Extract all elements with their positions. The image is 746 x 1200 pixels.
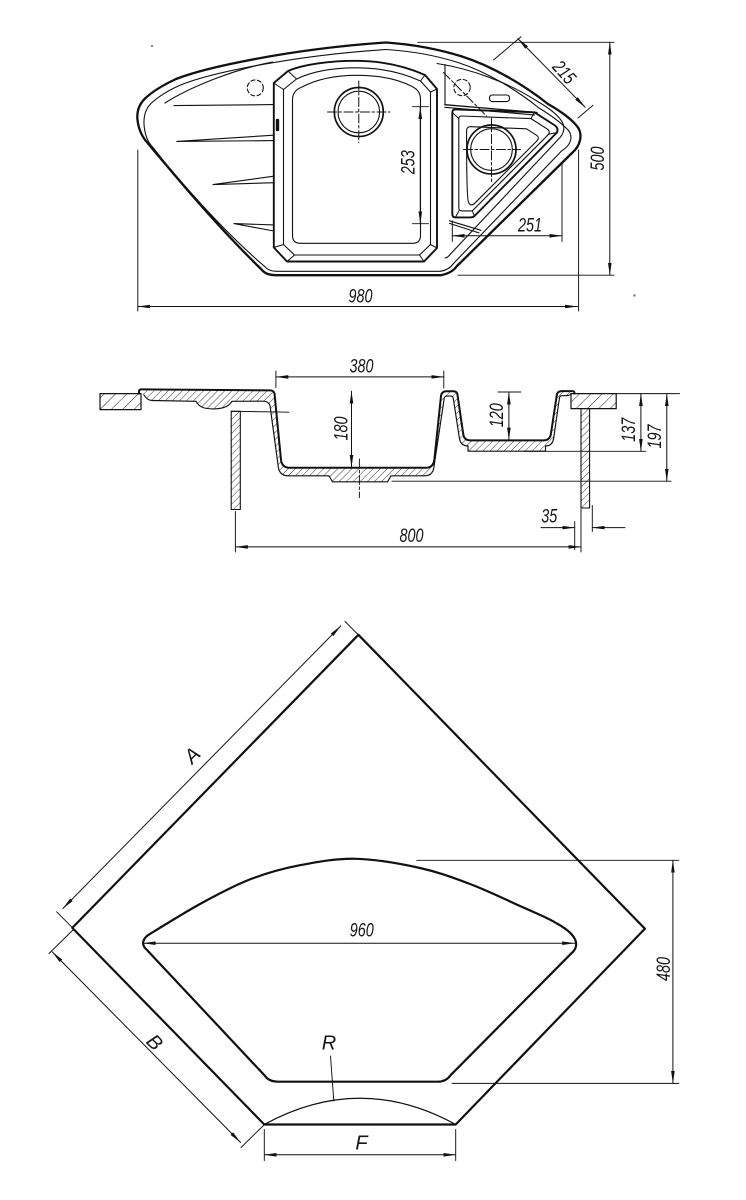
svg-text:251: 251	[517, 216, 542, 237]
svg-text:215: 215	[547, 56, 579, 89]
svg-text:980: 980	[349, 287, 373, 308]
svg-text:120: 120	[487, 403, 508, 427]
svg-text:960: 960	[350, 921, 374, 942]
svg-text:197: 197	[645, 423, 666, 448]
svg-text:380: 380	[350, 357, 374, 378]
svg-text:800: 800	[400, 526, 424, 547]
svg-text:137: 137	[619, 417, 640, 442]
svg-text:F: F	[355, 1133, 369, 1155]
svg-text:R: R	[322, 1033, 336, 1055]
svg-text:500: 500	[588, 146, 609, 170]
svg-text:253: 253	[398, 150, 419, 175]
svg-text:35: 35	[541, 506, 557, 527]
svg-text:180: 180	[332, 416, 353, 440]
svg-text:B: B	[142, 1030, 167, 1055]
svg-text:A: A	[179, 743, 205, 769]
svg-text:480: 480	[654, 957, 675, 981]
